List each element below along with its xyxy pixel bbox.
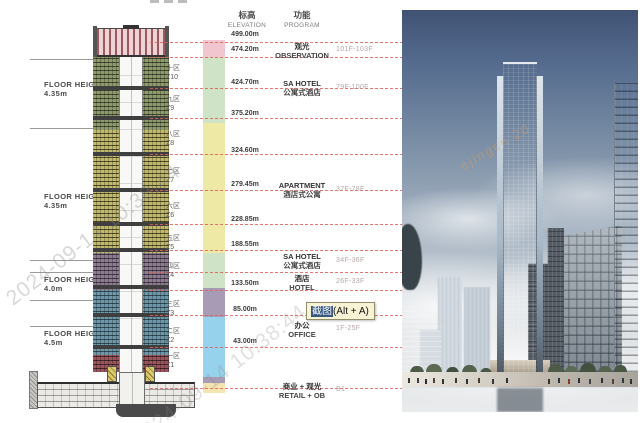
tower-fin-right bbox=[536, 76, 543, 377]
background-tower bbox=[464, 287, 490, 372]
floor-range-label: 1F-25F bbox=[336, 325, 386, 332]
basement-core bbox=[119, 372, 145, 406]
elevation-value: 324.60m bbox=[222, 147, 268, 154]
program-header-en: PROGRAM bbox=[274, 22, 330, 29]
floor-range-label: 37F-78F bbox=[336, 186, 386, 193]
crown-post-left bbox=[93, 26, 97, 58]
far-right-dark-building bbox=[614, 83, 638, 372]
elevation-dashed-line bbox=[150, 154, 403, 155]
color-bar-segment bbox=[203, 123, 225, 253]
pedestrians bbox=[408, 378, 410, 383]
elevation-dashed-line bbox=[150, 347, 403, 348]
program-label: SA HOTEL公寓式酒店 bbox=[260, 79, 344, 97]
zone-label: 九区Z9 bbox=[166, 95, 200, 113]
elevation-value: 228.85m bbox=[222, 216, 268, 223]
tower-reflection bbox=[497, 388, 543, 412]
floor-range-label: B1 bbox=[336, 386, 386, 393]
elevation-value: 375.20m bbox=[222, 110, 268, 117]
tower-core bbox=[119, 57, 143, 372]
zone-label: 五区Z5 bbox=[166, 234, 200, 252]
elevation-value: 43.00m bbox=[222, 338, 268, 345]
elevation-value: 499.00m bbox=[222, 31, 268, 38]
floor-range-label: 101F-103F bbox=[336, 46, 386, 53]
screenshot-hotkey-tooltip[interactable]: 截图(Alt + A) bbox=[306, 302, 375, 320]
floor-range-label: 26F-33F bbox=[336, 278, 386, 285]
program-column-header: 功能 PROGRAM bbox=[274, 9, 330, 29]
program-label: APARTMENT酒店式公寓 bbox=[260, 181, 344, 199]
elevation-value: 188.55m bbox=[222, 241, 268, 248]
crown-cap bbox=[123, 25, 139, 29]
zone-label: 四区Z4 bbox=[166, 262, 200, 280]
program-label: 酒店HOTEL bbox=[260, 274, 344, 292]
tower-rendering-photo: ejingcn 20 bbox=[402, 10, 638, 412]
floor-range-label: 34F-36F bbox=[336, 257, 386, 264]
program-label: SA HOTEL公寓式酒店 bbox=[260, 252, 344, 270]
elevation-value: 85.00m bbox=[222, 306, 268, 313]
zone-label: 二区Z2 bbox=[166, 327, 200, 345]
floor-range-label: 79F-100F bbox=[336, 84, 386, 91]
tooltip-highlight-text: 截图 bbox=[311, 306, 333, 317]
zone-label: 八区Z8 bbox=[166, 130, 200, 148]
elevation-header-cn: 标高 bbox=[219, 9, 275, 21]
main-tower bbox=[497, 62, 543, 377]
zone-label: 十区Z10 bbox=[166, 64, 200, 82]
zone-label: 三区Z3 bbox=[166, 300, 200, 318]
elevation-column-header: 标高 ELEVATION bbox=[219, 9, 275, 29]
elevation-dashed-line bbox=[150, 224, 403, 225]
slide-canvas: FLOOR HEIGHT4.35mFLOOR HEIGHT4.35mFLOOR … bbox=[0, 0, 640, 423]
elevator-pit-left bbox=[107, 366, 117, 382]
zone-label: 一区Z1 bbox=[166, 352, 200, 370]
program-header-cn: 功能 bbox=[274, 9, 330, 21]
zone-label: 六区Z6 bbox=[166, 202, 200, 220]
elevation-header-en: ELEVATION bbox=[219, 22, 275, 29]
program-label: 办公OFFICE bbox=[260, 321, 344, 339]
program-label: 商业 + 观光RETAIL + OB bbox=[260, 382, 344, 400]
tooltip-rest-text: (Alt + A) bbox=[333, 306, 369, 317]
elevation-dashed-line bbox=[150, 118, 403, 119]
tower-glass-body bbox=[503, 62, 537, 377]
plaza bbox=[402, 372, 638, 387]
zone-label: 七区Z7 bbox=[166, 167, 200, 185]
program-label: 观光OBSERVATION bbox=[260, 42, 344, 60]
